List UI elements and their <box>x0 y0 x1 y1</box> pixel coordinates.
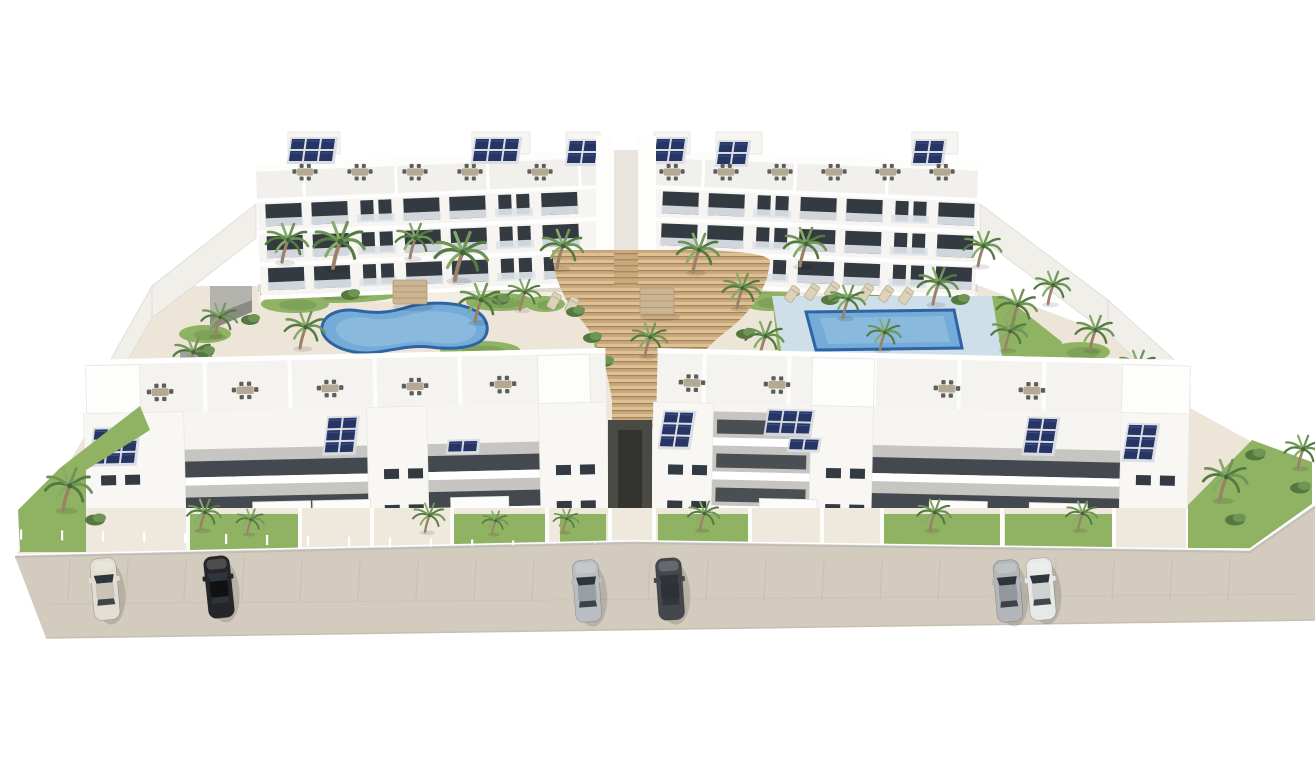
solar-panel-array <box>657 410 696 450</box>
solar-panel-array <box>322 416 360 456</box>
scene-svg <box>0 0 1315 778</box>
solar-panel-array <box>1021 417 1060 457</box>
solar-panel-array <box>564 139 601 166</box>
solar-panel-array <box>446 439 481 455</box>
solar-panel-array <box>1121 423 1160 463</box>
render-figure <box>0 0 1315 778</box>
architectural-render-canvas <box>0 0 1315 778</box>
solar-panel-array <box>286 137 338 164</box>
solar-panel-array <box>651 137 688 164</box>
solar-panel-array <box>470 137 522 164</box>
pergola <box>640 288 681 321</box>
solar-panel-array <box>763 409 815 437</box>
solar-panel-array <box>787 437 822 453</box>
pergola <box>393 280 434 311</box>
solar-panel-array <box>910 139 947 166</box>
solar-panel-array <box>714 140 751 167</box>
